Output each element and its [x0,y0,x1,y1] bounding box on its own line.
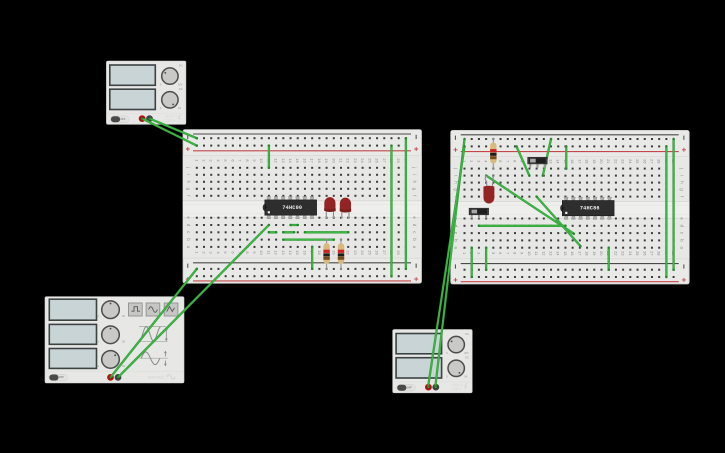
svg-text:13: 13 [549,251,554,256]
svg-text:24: 24 [628,251,633,256]
svg-text:30V: 30V [464,351,469,355]
svg-text:25: 25 [367,250,372,255]
svg-text:j: j [186,166,191,168]
svg-text:74HC86: 74HC86 [580,206,600,212]
svg-text:12: 12 [274,158,279,163]
svg-text:24: 24 [360,250,365,255]
svg-text:20: 20 [599,251,604,256]
svg-text:DC: DC [465,356,469,360]
svg-text:5A: 5A [464,375,467,379]
svg-text:21: 21 [339,158,344,163]
svg-text:j: j [412,166,417,168]
svg-text:74HC00: 74HC00 [282,205,302,211]
svg-text:17: 17 [310,158,315,163]
svg-text:c: c [680,232,685,234]
svg-text:16: 16 [302,158,307,163]
svg-text:17: 17 [577,159,582,164]
svg-text:27: 27 [649,251,654,256]
svg-text:22: 22 [346,250,351,255]
svg-text:24: 24 [628,159,633,164]
svg-text:c: c [186,231,191,233]
svg-text:18: 18 [585,159,590,164]
svg-text:16: 16 [570,159,575,164]
svg-text:13: 13 [281,158,286,163]
svg-text:18: 18 [317,250,322,255]
svg-text:1.00 A: 1.00 A [165,118,175,122]
svg-text:14: 14 [556,159,561,164]
svg-text:10: 10 [527,251,532,256]
svg-text:26: 26 [642,251,647,256]
svg-text:1.00 A: 1.00 A [452,387,462,391]
svg-text:15: 15 [563,251,568,256]
svg-text:20: 20 [599,159,604,164]
svg-text:23: 23 [621,251,626,256]
svg-text:Func Gen: Func Gen [148,376,164,380]
svg-text:i: i [412,174,417,175]
svg-text:j: j [680,167,685,169]
svg-text:19: 19 [592,251,597,256]
svg-text:14: 14 [556,251,561,256]
svg-text:OFF: OFF [407,385,413,389]
svg-text:c: c [412,231,417,233]
svg-text:DC: DC [465,332,469,336]
svg-text:24: 24 [360,158,365,163]
svg-text:23: 23 [353,250,358,255]
svg-text:j: j [454,167,459,169]
svg-text:17: 17 [577,251,582,256]
svg-text:25: 25 [635,159,640,164]
svg-text:12: 12 [541,251,546,256]
svg-text:26: 26 [375,158,380,163]
svg-text:22: 22 [613,159,618,164]
svg-text:21: 21 [606,159,611,164]
svg-text:13: 13 [281,250,286,255]
svg-text:28: 28 [657,159,662,164]
svg-text:1M: 1M [122,315,125,318]
svg-text:1M: 1M [122,340,125,343]
svg-text:29: 29 [396,250,401,255]
svg-text:5A: 5A [178,106,181,110]
svg-text:27: 27 [382,250,387,255]
svg-text:DC: DC [179,87,183,91]
svg-text:19: 19 [324,158,329,163]
svg-text:10: 10 [259,250,264,255]
svg-text:DC: DC [179,64,183,68]
svg-text:25: 25 [635,251,640,256]
svg-text:10: 10 [259,158,264,163]
svg-text:30V: 30V [178,83,183,87]
svg-text:22: 22 [613,251,618,256]
svg-text:i: i [454,175,459,176]
svg-text:27: 27 [382,158,387,163]
svg-text:27: 27 [649,159,654,164]
svg-text:22: 22 [346,158,351,163]
svg-text:14: 14 [288,158,293,163]
svg-text:19: 19 [592,159,597,164]
svg-text:1M: 1M [122,365,125,368]
svg-text:29: 29 [396,158,401,163]
svg-text:20: 20 [331,158,336,163]
svg-text:OFF: OFF [121,117,127,121]
svg-text:16: 16 [302,250,307,255]
svg-text:23: 23 [353,158,358,163]
svg-text:28: 28 [657,251,662,256]
svg-text:16: 16 [570,251,575,256]
svg-text:23: 23 [621,159,626,164]
svg-text:26: 26 [375,250,380,255]
svg-text:12: 12 [274,250,279,255]
svg-text:14: 14 [288,250,293,255]
svg-text:15: 15 [295,250,300,255]
svg-text:15: 15 [295,158,300,163]
svg-text:18: 18 [585,251,590,256]
svg-text:OFF: OFF [59,375,65,379]
svg-text:13: 13 [549,159,554,164]
svg-text:25: 25 [367,158,372,163]
svg-text:26: 26 [642,159,647,164]
svg-text:18: 18 [317,158,322,163]
svg-text:i: i [186,174,191,175]
svg-text:i: i [680,175,685,176]
svg-text:20: 20 [331,250,336,255]
